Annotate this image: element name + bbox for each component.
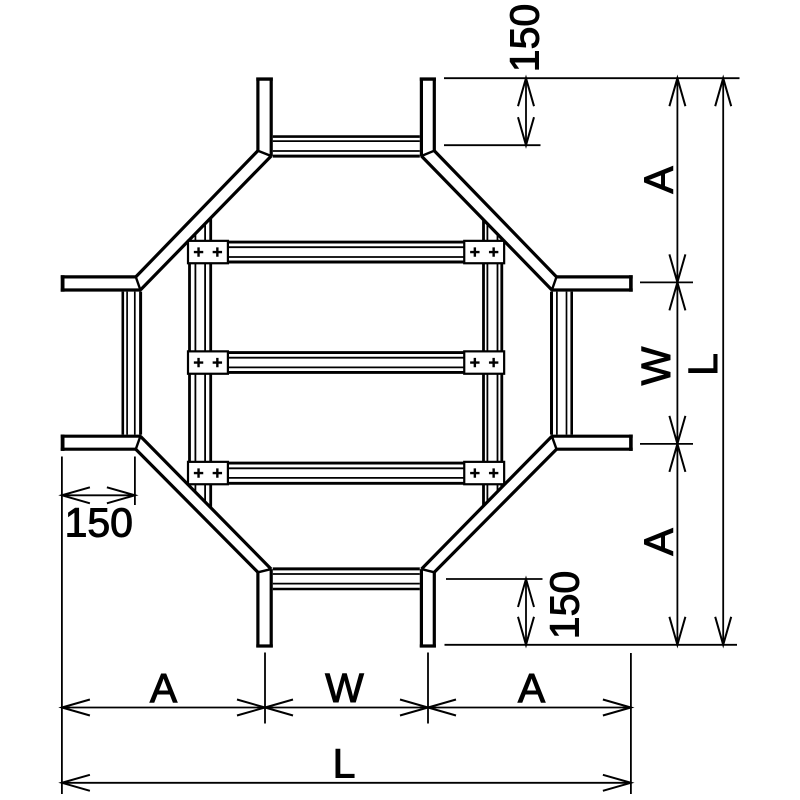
svg-text:150: 150	[502, 4, 548, 72]
svg-text:A: A	[636, 528, 682, 556]
svg-text:W: W	[325, 665, 364, 711]
svg-text:A: A	[150, 665, 178, 711]
svg-text:L: L	[680, 353, 726, 376]
svg-text:A: A	[518, 665, 546, 711]
svg-text:150: 150	[65, 500, 133, 546]
svg-text:150: 150	[542, 571, 588, 639]
svg-text:L: L	[333, 741, 356, 787]
svg-text:W: W	[633, 346, 679, 385]
svg-text:A: A	[636, 166, 682, 194]
